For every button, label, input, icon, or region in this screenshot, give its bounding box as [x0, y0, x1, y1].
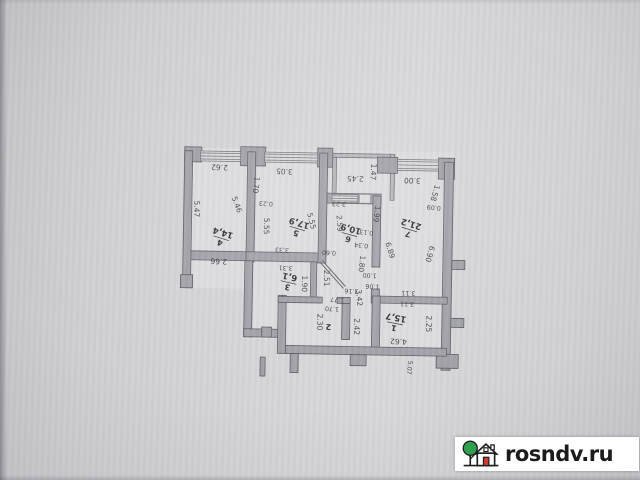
- dimension-label: 1.90: [300, 275, 309, 292]
- dimension-label: 1.00: [362, 271, 376, 279]
- dimension-label: 2.45: [347, 174, 364, 184]
- dimension-label: 3.33: [275, 246, 289, 254]
- watermark: rosndv.ru: [455, 437, 639, 471]
- dimension-label: 1.70: [251, 176, 262, 194]
- floorplan-photo: 2.621.703.050.232.451.473.233.001.580.09…: [0, 0, 640, 480]
- dimension-label: 0.23: [259, 199, 273, 207]
- wall-segment: [342, 303, 351, 339]
- dimension-label: 3.11: [400, 300, 414, 308]
- dimension-label: 1.99: [371, 205, 382, 223]
- dimension-label: 1.06: [365, 282, 379, 290]
- dimension-label: 3.05: [276, 166, 293, 176]
- wall-segment: [318, 153, 328, 263]
- wall-segment: [180, 275, 192, 288]
- window-symbol: [265, 152, 318, 163]
- dimension-label: 1.77: [330, 295, 344, 303]
- dimension-label: 2.51: [322, 270, 331, 287]
- dimension-label: 1.80: [356, 255, 367, 273]
- room-number: 2: [325, 322, 331, 331]
- dimension-label: 2.25: [424, 316, 433, 333]
- dimension-label: 2.62: [211, 162, 228, 172]
- dimension-label: 1.70: [325, 304, 339, 312]
- watermark-site-label: rosndv.ru: [505, 444, 613, 465]
- dimension-label: 5.55: [262, 218, 271, 235]
- plan-tilt-group: 2.621.703.050.232.451.473.233.001.580.09…: [179, 146, 467, 380]
- wall-segment: [452, 260, 465, 269]
- dimension-label: 5.07: [405, 360, 413, 375]
- house-door: [483, 457, 488, 465]
- dimension-label: 0.34: [354, 241, 369, 249]
- wall-segment: [244, 261, 253, 337]
- photo-edge-shadow-top: [0, 0, 640, 4]
- window-symbol: [397, 159, 438, 171]
- dimension-label: 5.47: [192, 200, 201, 217]
- wall-segment: [377, 157, 397, 173]
- wall-segment: [262, 327, 272, 337]
- dimension-label: 0.60: [322, 248, 336, 256]
- wall-segment: [277, 295, 286, 353]
- dimension-label: 1.47: [369, 163, 379, 180]
- dimension-label: 3.42: [354, 289, 364, 307]
- dimension-label: 0.09: [427, 203, 442, 211]
- house-chimney: [491, 445, 494, 450]
- entrance-threshold: [350, 355, 366, 366]
- dimension-label: 3.00: [404, 176, 421, 186]
- wall-segment: [246, 152, 256, 262]
- dimension-label: 2.42: [352, 318, 361, 335]
- wall-segment: [290, 354, 298, 373]
- photo-edge-shadow-bottom: [0, 475, 640, 480]
- wall-segment: [310, 262, 317, 302]
- dimension-label: 3.11: [401, 289, 415, 296]
- attic-window: [484, 448, 488, 452]
- wall-segment: [278, 296, 322, 303]
- dimension-label: 2.66: [210, 256, 227, 266]
- photo-edge-shadow-left: [0, 0, 7, 480]
- dimension-label: 2.30: [315, 314, 324, 331]
- wall-segment: [260, 357, 265, 376]
- balcony-door-opening: [360, 195, 370, 203]
- room-label-2: 2: [325, 322, 331, 331]
- dimension-label: 4.62: [390, 336, 407, 346]
- house-tree-icon: [462, 439, 500, 469]
- dimension-label: 3.23: [332, 199, 346, 207]
- floor-plan: 2.621.703.050.232.451.473.233.001.580.09…: [0, 0, 640, 480]
- wall-segment: [451, 318, 464, 327]
- window-symbol: [201, 151, 241, 162]
- wall-segment: [371, 296, 380, 353]
